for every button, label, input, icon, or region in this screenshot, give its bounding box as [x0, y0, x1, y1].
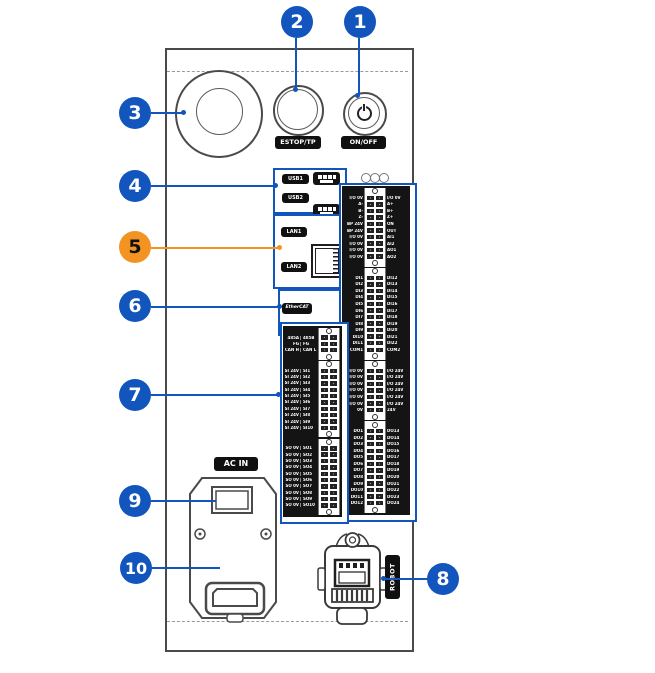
- terminal-label-left: SI 24V: [284, 388, 300, 392]
- terminal-label-right: I/O 24V: [386, 375, 407, 379]
- terminal-label-right: DI14: [386, 289, 407, 293]
- terminal-label-right: SO7: [300, 484, 318, 488]
- terminal-label-left: SO 0V: [284, 491, 300, 495]
- estop-tp-label: ESTOP/TP: [275, 136, 321, 149]
- terminal-label-left: SO 0V: [284, 503, 300, 507]
- terminal-label-right: SI4: [300, 388, 318, 392]
- terminal-label-right: DO14: [386, 436, 407, 440]
- terminal-screw-row: [343, 353, 409, 360]
- terminal-screw-row: [284, 431, 341, 437]
- terminal-screw: [318, 431, 340, 437]
- terminal-label-right: I/O 0V: [386, 196, 407, 200]
- terminal-label-right: AO2: [386, 255, 407, 259]
- terminal-label-left: DI1: [343, 276, 364, 280]
- terminal-label-left: BP 24V: [343, 229, 364, 233]
- leader-dot: [277, 245, 282, 250]
- terminal-label-right: ON: [386, 222, 407, 226]
- terminal-label-right: SI3: [300, 381, 318, 385]
- terminal-label-right: DI22: [386, 341, 407, 345]
- terminal-group-encoder-analog: I/O 0VI/O 0VA-A+B-B+Z-Z+BP 24VONBP 24VOU…: [343, 188, 409, 267]
- terminal-label-left: SI 24V: [284, 407, 300, 411]
- terminal-label-right: DI16: [386, 302, 407, 306]
- terminal-label-left: SI 24V: [284, 394, 300, 398]
- terminal-label-right: FG: [300, 342, 318, 346]
- terminal-label-right: DO21: [386, 482, 407, 486]
- terminal-label-left: BP 24V: [343, 222, 364, 226]
- terminal-label-right: I/O 24V: [386, 395, 407, 399]
- lan1-label: LAN1: [281, 227, 307, 237]
- callout-6: 6: [119, 290, 151, 322]
- terminal-label-left: SI 24V: [284, 375, 300, 379]
- robot-label: ROBOT: [385, 555, 400, 599]
- terminal-label-left: DI5: [343, 302, 364, 306]
- callout-3: 3: [119, 97, 151, 129]
- leader-line-2: [295, 38, 297, 89]
- leader-line-1: [358, 38, 360, 95]
- terminal-label-right: DO19: [386, 468, 407, 472]
- leader-line-10: [152, 567, 220, 569]
- lan2-label: LAN2: [281, 262, 307, 272]
- terminal-label-right: SI2: [300, 375, 318, 379]
- vent-circle: [379, 173, 389, 183]
- terminal-label-right: DI19: [386, 322, 407, 326]
- terminal-label-right: OUT: [386, 229, 407, 233]
- terminal-label-right: DI17: [386, 309, 407, 313]
- terminal-label-right: I/O 24V: [386, 369, 407, 373]
- leader-dot: [355, 93, 360, 98]
- terminal-label-right: SO2: [300, 453, 318, 457]
- terminal-label-right: DI15: [386, 295, 407, 299]
- terminal-label-right: DI21: [386, 335, 407, 339]
- terminal-label-right: DO17: [386, 455, 407, 459]
- terminal-label-left: SI 24V: [284, 400, 300, 404]
- leader-dot: [293, 87, 298, 92]
- terminal-label-right: SI7: [300, 407, 318, 411]
- leader-line-8: [383, 578, 428, 580]
- terminal-label-right: SO1: [300, 446, 318, 450]
- terminal-label-left: SI 24V: [284, 426, 300, 430]
- terminal-label-left: I/O 0V: [343, 255, 364, 259]
- ethercat-label: EtherCAT: [282, 303, 312, 314]
- callout-2: 2: [281, 6, 313, 38]
- terminal-label-left: SO 0V: [284, 497, 300, 501]
- callout-5: 5: [119, 231, 151, 263]
- terminal-label-right: SI8: [300, 413, 318, 417]
- callout-1: 1: [344, 6, 376, 38]
- leader-dot: [276, 392, 281, 397]
- terminal-screw: [364, 506, 386, 513]
- terminal-label-left: FG: [284, 342, 300, 346]
- terminal-label-left: I/O 0V: [343, 242, 364, 246]
- terminal-label-left: SI 24V: [284, 420, 300, 424]
- terminal-label-right: SI9: [300, 420, 318, 424]
- leader-line-7: [151, 394, 278, 396]
- terminal-label-left: SO 0V: [284, 478, 300, 482]
- terminal-screw-row: [343, 260, 409, 267]
- terminal-group-digital-in: DI1DI12DI2DI13DI3DI14DI4DI15DI5DI16DI6DI…: [343, 268, 409, 360]
- leader-line-5: [151, 247, 279, 249]
- terminal-label-left: SO 0V: [284, 446, 300, 450]
- terminal-label-left: SI 24V: [284, 381, 300, 385]
- terminal-label-right: 485B: [300, 336, 318, 340]
- terminal-label-left: DI6: [343, 309, 364, 313]
- terminal-label-right: SI1: [300, 369, 318, 373]
- usb1-label: USB1: [282, 174, 309, 184]
- terminal-label-right: DI13: [386, 282, 407, 286]
- leader-dot: [381, 576, 386, 581]
- terminal-label-right: SI10: [300, 426, 318, 430]
- terminal-label-left: SO 0V: [284, 472, 300, 476]
- terminal-label-left: SO 0V: [284, 459, 300, 463]
- terminal-label-left: I/O 0V: [343, 196, 364, 200]
- terminal-label-right: DI18: [386, 315, 407, 319]
- leader-line-9: [151, 500, 216, 502]
- power-icon: [357, 106, 372, 121]
- terminal-screw-row: [343, 506, 409, 513]
- leader-dot: [273, 183, 278, 188]
- terminal-label-right: I/O 24V: [386, 402, 407, 406]
- terminal-label-right: B+: [386, 209, 407, 213]
- terminal-group-safety-out: SO 0VSO1SO 0VSO2SO 0VSO3SO 0VSO4SO 0VSO5…: [284, 439, 341, 515]
- terminal-label-left: Z-: [343, 215, 364, 219]
- terminal-label-right: SO10: [300, 503, 318, 507]
- safety-terminal-block: 485A485BFGFGCAN HCAN LSI 24VSI1SI 24VSI2…: [283, 326, 342, 517]
- terminal-label-right: Z+: [386, 215, 407, 219]
- leader-line-4: [151, 185, 275, 187]
- terminal-label-left: B-: [343, 209, 364, 213]
- main-round-connector-inner: [196, 88, 243, 135]
- terminal-label-right: AI2: [386, 242, 407, 246]
- terminal-label-left: DI7: [343, 315, 364, 319]
- terminal-label-right: DO20: [386, 475, 407, 479]
- ac-in-label: AC IN: [214, 457, 258, 471]
- terminal-label-left: A-: [343, 202, 364, 206]
- callout-4: 4: [119, 170, 151, 202]
- terminal-label-right: COM2: [386, 348, 407, 352]
- terminal-label-right: SO8: [300, 491, 318, 495]
- terminal-label-right: SO3: [300, 459, 318, 463]
- terminal-label-left: SI 24V: [284, 369, 300, 373]
- terminal-label-left: SI 24V: [284, 413, 300, 417]
- terminal-label-right: I/O 24V: [386, 388, 407, 392]
- terminal-screw-row: [284, 353, 341, 359]
- terminal-label-right: SI6: [300, 400, 318, 404]
- terminal-label-right: SO9: [300, 497, 318, 501]
- callout-8: 8: [427, 563, 459, 595]
- terminal-screw: [318, 353, 340, 359]
- terminal-label-right: AO1: [386, 248, 407, 252]
- usb2-label: USB2: [282, 193, 309, 203]
- callout-10: 10: [120, 552, 152, 584]
- terminal-group-comm: 485A485BFGFGCAN HCAN L: [284, 328, 341, 360]
- terminal-label-right: DI20: [386, 328, 407, 332]
- terminal-label-right: DO23: [386, 495, 407, 499]
- leader-line-6: [151, 306, 279, 308]
- terminal-label-right: SI5: [300, 394, 318, 398]
- terminal-label-right: CAN L: [300, 348, 318, 352]
- terminal-label-right: 24V: [386, 408, 407, 412]
- terminal-label-right: DI12: [386, 276, 407, 280]
- terminal-group-digital-out: DO1DO13DO2DO14DO3DO15DO4DO16DO5DO17DO6DO…: [343, 421, 409, 513]
- terminal-label-right: SO4: [300, 465, 318, 469]
- terminal-label-left: DI3: [343, 289, 364, 293]
- terminal-label-left: DI2: [343, 282, 364, 286]
- terminal-label-right: DO13: [386, 429, 407, 433]
- terminal-label-right: A+: [386, 202, 407, 206]
- terminal-group-safety-in: SI 24VSI1SI 24VSI2SI 24VSI3SI 24VSI4SI 2…: [284, 361, 341, 437]
- power-entry-module: [186, 474, 280, 624]
- terminal-screw: [364, 353, 386, 360]
- leader-dot: [181, 110, 186, 115]
- leader-dot: [277, 304, 282, 309]
- terminal-label-right: DO18: [386, 462, 407, 466]
- terminal-screw: [364, 413, 386, 420]
- terminal-label-right: DO15: [386, 442, 407, 446]
- terminal-label-right: AI1: [386, 235, 407, 239]
- controller-rear-panel-diagram: ESTOP/TP ON/OFF USB1 USB2 LAN1 LAN2 Ethe…: [0, 0, 655, 673]
- callout-7: 7: [119, 379, 151, 411]
- terminal-screw-row: [343, 413, 409, 420]
- terminal-label-right: DO22: [386, 488, 407, 492]
- onoff-label: ON/OFF: [341, 136, 386, 149]
- terminal-label-right: SO5: [300, 472, 318, 476]
- terminal-label-left: 485A: [284, 336, 300, 340]
- terminal-label-left: SO 0V: [284, 465, 300, 469]
- terminal-group-power-rail: I/O 0VI/O 24VI/O 0VI/O 24VI/O 0VI/O 24VI…: [343, 361, 409, 420]
- terminal-screw-row: [284, 509, 341, 515]
- estop-tp-connector-inner: [277, 89, 318, 130]
- terminal-label-left: DI4: [343, 295, 364, 299]
- terminal-label-right: SO6: [300, 478, 318, 482]
- terminal-screw: [318, 509, 340, 515]
- terminal-label-left: I/O 0V: [343, 235, 364, 239]
- terminal-label-right: DO24: [386, 501, 407, 505]
- terminal-label-left: I/O 0V: [343, 248, 364, 252]
- terminal-label-left: CAN H: [284, 348, 300, 352]
- terminal-screw: [364, 260, 386, 267]
- terminal-label-left: SO 0V: [284, 484, 300, 488]
- terminal-label-right: DO16: [386, 449, 407, 453]
- terminal-label-right: I/O 24V: [386, 382, 407, 386]
- io-terminal-block: I/O 0VI/O 0VA-A+B-B+Z-Z+BP 24VONBP 24VOU…: [342, 186, 410, 515]
- terminal-label-left: SO 0V: [284, 453, 300, 457]
- usb1-port[interactable]: [313, 172, 340, 185]
- power-button[interactable]: [348, 97, 380, 129]
- callout-9: 9: [119, 485, 151, 517]
- leader-line-3: [151, 112, 183, 114]
